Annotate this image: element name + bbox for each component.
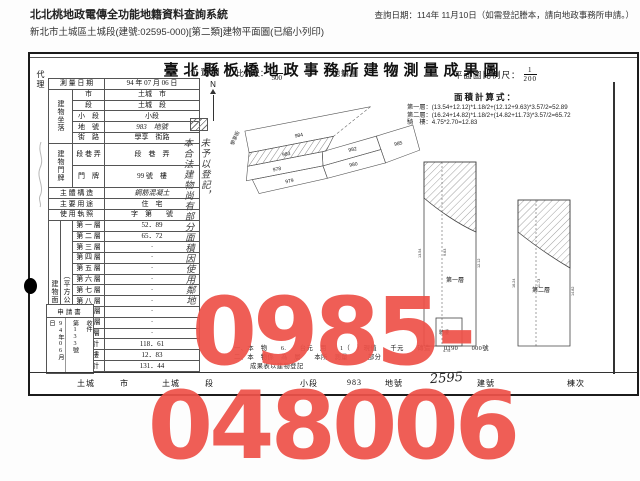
footer-city-suffix: 市	[120, 378, 129, 389]
plan-scale: 平面圖比例尺： 1 200	[454, 66, 537, 83]
floor-label: 第 三 層	[73, 242, 105, 253]
note-line: 二、本 物係 為 層 本所 測量 部分	[234, 353, 614, 362]
dimension-label: 9.63	[443, 249, 447, 256]
street-label: 街 路	[73, 132, 105, 143]
footer-section: 土城	[162, 378, 180, 389]
formula-arcade: 騎 樓：4.75*2.70=12.83	[407, 119, 571, 127]
section-value: 土城 段	[105, 100, 200, 111]
sheet-number-label: 號	[390, 68, 398, 79]
street-name-label: 學享街	[229, 130, 242, 147]
formula-floor1: 第一層：(13.54+12.12)*1.18/2+(12.12+9.63)*3.…	[407, 104, 571, 112]
north-arrow-icon: N	[206, 80, 220, 121]
location-map-label: 位置圖	[190, 66, 222, 78]
section-label: 段	[73, 100, 105, 111]
application-number: 第133號	[66, 318, 80, 372]
map-scale-denominator: 500	[271, 74, 283, 82]
plan-scale-denominator: 200	[524, 75, 538, 83]
map-scale-numerator: 1	[271, 65, 283, 74]
footer-parcel-label: 地號	[385, 378, 403, 389]
cadastre-map-label: 地籍圖	[332, 68, 359, 79]
table-row: 測 量 日 期94 年 07 月 06 日	[49, 79, 200, 90]
system-title: 北北桃地政電傳全功能地籍資料查詢系統	[30, 6, 228, 22]
dimension-label: 14.82	[571, 286, 575, 296]
footer-divider	[30, 372, 637, 373]
footer-city: 土城	[77, 378, 95, 389]
scan-artifact-blob	[24, 278, 37, 294]
table-row: 建物坐落市土城 市	[49, 89, 200, 100]
parcel-983-hatched	[245, 136, 336, 166]
location-map: 984 983 978 982 979 980 985 學享街	[226, 94, 426, 206]
parcel-number: 980	[349, 161, 359, 169]
area-calc-formulas: 第一層：(13.54+12.12)*1.18/2+(12.12+9.63)*3.…	[407, 104, 571, 127]
application-received: 收件	[80, 318, 94, 372]
floor2-label: 第二層	[532, 286, 550, 294]
map-scale-fraction: 1 500	[271, 65, 283, 82]
survey-date-value: 94 年 07 月 06 日	[105, 79, 200, 90]
doorplate-spanner: 建物門牌	[49, 143, 73, 188]
floor-label: 第 一 層	[73, 220, 105, 231]
subsection-label: 小 段	[73, 111, 105, 122]
document-breadcrumb: 新北市土城區土城段(建號:02595-000)[第二類]建物平面圖(已縮小列印)	[30, 24, 324, 38]
footer-block-label: 棟次	[567, 378, 585, 389]
dimension-label: 12.12	[477, 258, 481, 268]
application-date: 94年06月 日	[47, 318, 66, 372]
footer-subsection: 小段	[300, 378, 318, 389]
floor-plan-drawing: 第一層 第二層 騎樓 13.54 9.63 12.12 16.24 11.73 …	[398, 128, 610, 354]
structure-label: 主 體 構 造	[49, 188, 105, 199]
location-spanner: 建物坐落	[49, 89, 73, 143]
footer-section-suffix: 段	[205, 378, 214, 389]
floor1-label: 第一層	[446, 276, 464, 284]
parcel-number: 978	[272, 166, 282, 174]
usage-label: 主 要 用 途	[49, 199, 105, 210]
city-value: 土城 市	[105, 89, 200, 100]
map-scale: 比例尺： 1 500	[236, 65, 283, 82]
application-box: 申請書 94年06月 日 第133號 收件	[46, 304, 94, 374]
document-notes: 一、本 物 6. 台元 用 1（ ）現值 千元 磚造 0190 000號 二、本…	[234, 344, 614, 371]
dimension-label: 13.54	[418, 248, 422, 258]
document-sheet: 臺北縣板橋地政事務所建物測量成果圖 代理 測 量 日 期94 年 07 月 06…	[28, 52, 639, 396]
handwritten-note-col1: 未予以登記，	[196, 138, 214, 356]
plan-scale-label: 平面圖比例尺：	[454, 69, 521, 81]
north-label: N	[206, 80, 220, 89]
parcel-value: 983 地號	[105, 122, 200, 133]
column-divider	[613, 82, 615, 374]
plan-scale-fraction: 1 200	[524, 66, 538, 83]
handwritten-note-col2: 本合法建物尚有部分面積因使用鄰地	[179, 138, 197, 356]
license-label: 使 用 執 照	[49, 209, 105, 220]
area-calc-label: 面積計算式：	[454, 91, 517, 103]
parcel-label: 地 號	[73, 122, 105, 133]
floor2-hatched-area	[518, 200, 570, 268]
city-label: 市	[73, 89, 105, 100]
floor1-hatched-area	[424, 162, 476, 232]
plan-scale-numerator: 1	[524, 66, 538, 75]
parcel-number: 984	[294, 132, 304, 140]
note-line: 一、本 物 6. 台元 用 1（ ）現值 千元 磚造 0190 000號	[234, 344, 614, 353]
legend-hatch-swatch	[190, 118, 208, 131]
footer-building-label: 建號	[477, 378, 495, 389]
floor-label: 第 五 層	[73, 263, 105, 274]
footer-parcel-number: 983	[347, 378, 362, 387]
agent-label: 代理	[34, 70, 46, 90]
plate-label: 門 牌	[73, 166, 105, 188]
parcel-984-dashed-edge	[329, 107, 374, 137]
floor-label: 第 四 層	[73, 253, 105, 264]
floor-label: 第 二 層	[73, 231, 105, 242]
handwritten-note: 未予以登記， 本合法建物尚有部分面積因使用鄰地	[176, 138, 214, 357]
parcel-number: 982	[348, 146, 358, 154]
handwritten-scribble	[33, 138, 49, 208]
dimension-label: 16.24	[512, 278, 516, 288]
lane-label: 段 巷 弄	[73, 143, 105, 165]
application-title: 申請書	[47, 305, 93, 318]
floor-label: 第 七 層	[73, 285, 105, 296]
dimension-label: 11.73	[537, 279, 541, 288]
query-date: 查詢日期：114年 11月10日（如需登記謄本，請向地政事務所申請。）	[375, 9, 634, 21]
subsection-value: 小段	[105, 111, 200, 122]
map-scale-label: 比例尺：	[236, 68, 268, 79]
survey-date-label: 測 量 日 期	[49, 79, 105, 90]
parcel-number: 979	[285, 178, 295, 186]
grand-total-value: 131．44	[105, 361, 200, 372]
note-line: 成果表以建物登記	[234, 362, 614, 371]
floor-label: 第 六 層	[73, 274, 105, 285]
footer-building-number-handwritten: 2595	[430, 370, 464, 387]
arcade-plan-label: 騎樓	[439, 329, 449, 336]
